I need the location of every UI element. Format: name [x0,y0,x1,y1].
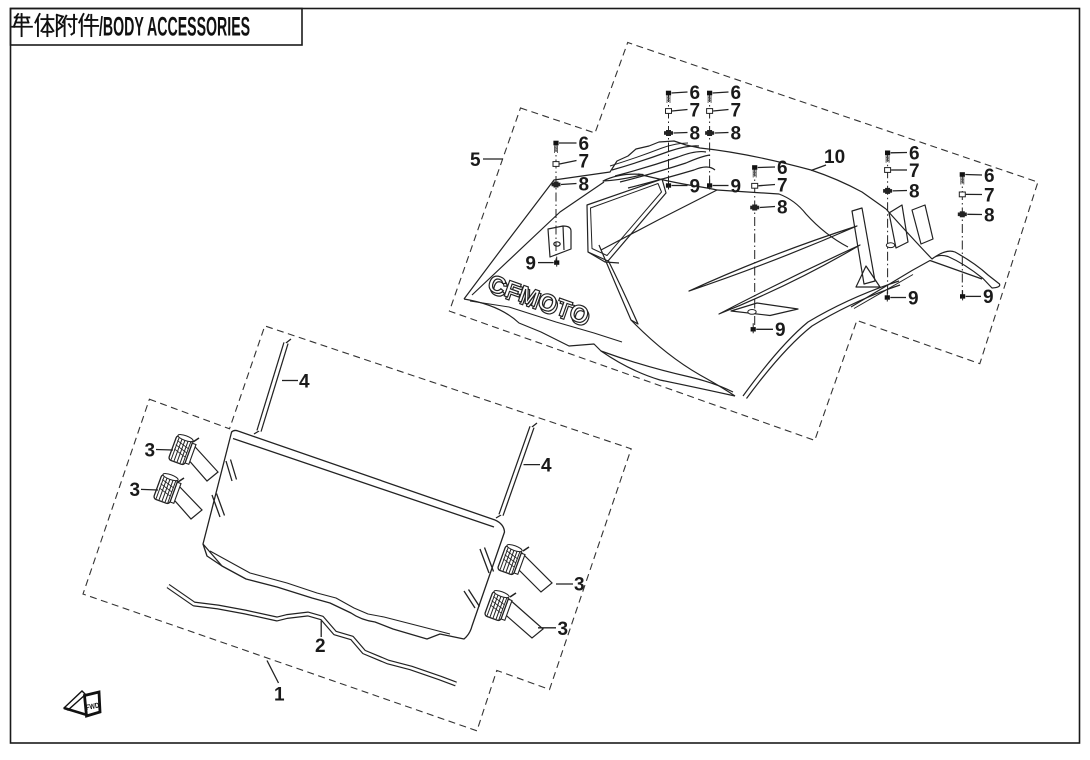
svg-text:8: 8 [777,197,788,218]
svg-text:CFMOTO: CFMOTO [484,270,592,331]
svg-text:9: 9 [525,253,536,274]
svg-text:7: 7 [777,175,788,196]
svg-text:8: 8 [984,205,995,226]
svg-text:1: 1 [274,685,285,706]
svg-text:5: 5 [470,150,481,171]
svg-text:3: 3 [130,480,141,501]
svg-text:8: 8 [690,123,701,144]
svg-text:/BODY ACCESSORIES: /BODY ACCESSORIES [99,10,250,41]
svg-text:4: 4 [299,371,310,392]
svg-text:9: 9 [775,320,786,341]
svg-text:3: 3 [558,619,569,640]
svg-text:8: 8 [909,181,920,202]
svg-text:6: 6 [984,166,995,187]
svg-text:2: 2 [315,636,326,657]
svg-text:9: 9 [983,287,994,308]
svg-text:7: 7 [909,161,920,182]
svg-text:7: 7 [731,100,742,121]
svg-text:9: 9 [690,176,701,197]
svg-text:9: 9 [908,288,919,309]
svg-text:8: 8 [731,123,742,144]
svg-text:9: 9 [731,176,742,197]
svg-text:7: 7 [690,100,701,121]
svg-text:7: 7 [984,185,995,206]
svg-text:3: 3 [574,575,585,596]
svg-text:8: 8 [579,174,590,195]
svg-text:10: 10 [824,147,845,168]
svg-text:4: 4 [541,455,552,476]
svg-text:3: 3 [145,440,156,461]
svg-text:7: 7 [579,151,590,172]
